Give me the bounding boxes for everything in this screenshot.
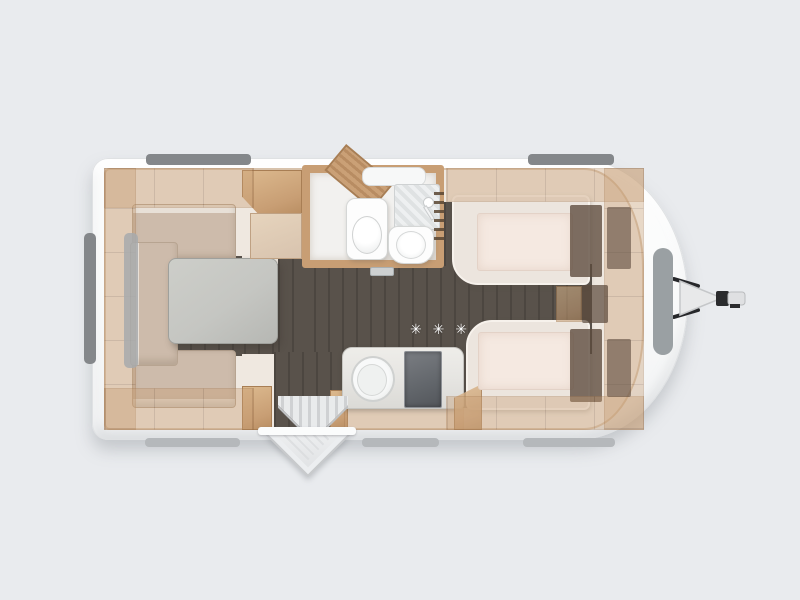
dinette-table <box>168 258 278 344</box>
overhead-locker-dinette-bottom <box>104 388 254 430</box>
towel-rail <box>434 192 444 240</box>
washbasin-bowl <box>352 216 382 254</box>
top-window-right <box>528 154 614 165</box>
wardrobe-door-center <box>582 285 608 323</box>
single-bed-top-headboard <box>570 205 602 277</box>
toilet-lid <box>396 231 426 259</box>
door-threshold <box>258 427 356 435</box>
dinette-sideboard <box>250 213 302 259</box>
rear-window <box>84 233 96 364</box>
front-window <box>653 248 673 355</box>
washroom-door-handle <box>370 267 394 276</box>
caravan-floorplan-canvas: ✳ ✳ ✳ <box>0 0 800 600</box>
kitchen-sink-bowl <box>357 364 387 396</box>
single-bed-bottom-headboard <box>570 329 602 402</box>
wardrobe-door-top <box>607 207 631 269</box>
wardrobe-door-bottom <box>607 339 631 397</box>
entry-door-leaf <box>263 434 354 477</box>
entry-door-open <box>260 434 356 504</box>
tow-hitch-icon <box>666 268 750 328</box>
single-bed-top-mattress <box>477 213 573 271</box>
top-window-left <box>146 154 251 165</box>
entry-door-step-pattern <box>283 434 334 460</box>
bottom-window-middle <box>362 438 439 447</box>
hob-rating-stars: ✳ ✳ ✳ <box>408 321 472 339</box>
kitchen-hob <box>404 351 442 408</box>
bottom-window-right <box>523 438 615 447</box>
single-bed-bottom-mattress <box>478 332 574 390</box>
rear-inner-window <box>124 233 138 368</box>
bedside-unit <box>556 286 582 322</box>
bottom-window-left <box>145 438 240 447</box>
